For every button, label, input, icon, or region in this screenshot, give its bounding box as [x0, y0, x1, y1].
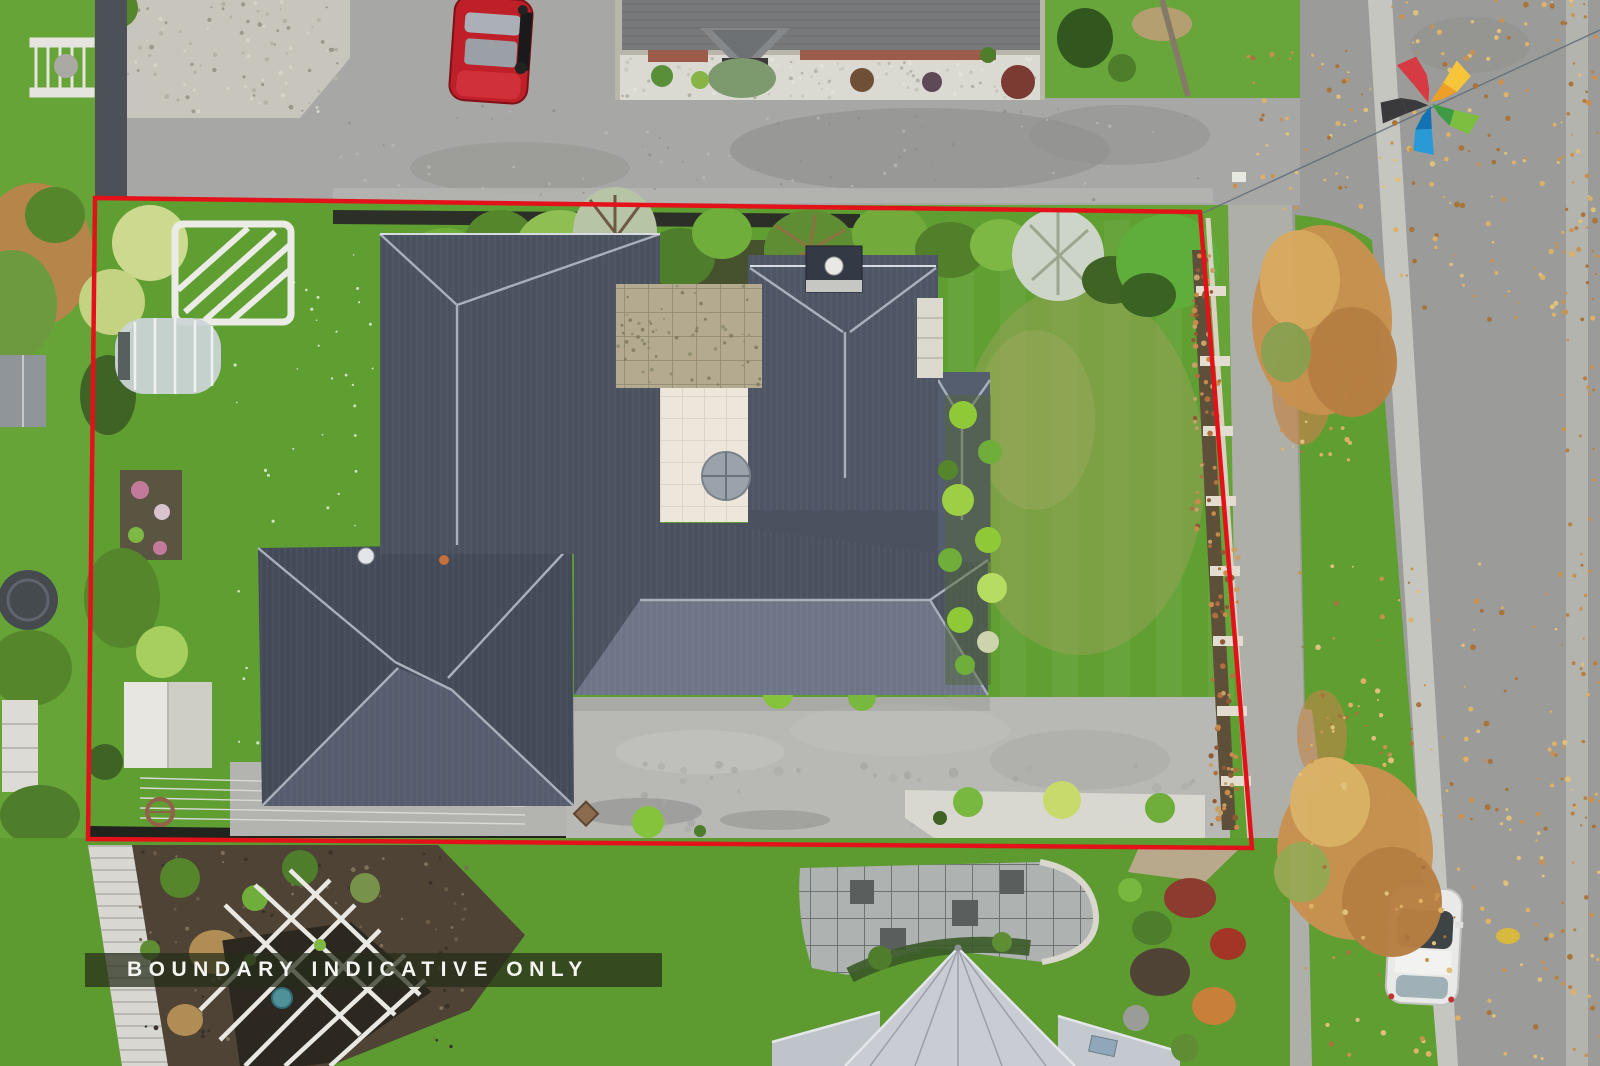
boundary-disclaimer-label: BOUNDARY INDICATIVE ONLY — [85, 953, 662, 987]
mailbox — [1232, 172, 1246, 182]
road-marking — [1496, 928, 1520, 944]
top-neighbor-house — [615, 0, 1045, 100]
aerial-property-photo: BOUNDARY INDICATIVE ONLY — [0, 0, 1600, 1066]
bottom-neighbor-yard — [0, 838, 1290, 1066]
side-fence — [95, 0, 127, 205]
planter-pot — [272, 988, 292, 1008]
red-car — [448, 0, 533, 105]
property-grounds — [79, 187, 1252, 853]
far-footpath — [1566, 0, 1588, 1066]
satellite-dish — [358, 548, 374, 564]
chimney — [806, 246, 862, 292]
greenhouse-polytunnel — [115, 318, 221, 394]
rear-window — [464, 12, 521, 36]
white-fence — [2, 700, 38, 792]
windshield — [464, 38, 518, 68]
rear-window — [1395, 975, 1448, 1000]
top-right-lawn — [1045, 0, 1300, 98]
garden-shed — [124, 682, 212, 768]
aerial-photo-canvas — [0, 0, 1600, 1066]
top-left-neighbor-yard — [0, 0, 138, 205]
